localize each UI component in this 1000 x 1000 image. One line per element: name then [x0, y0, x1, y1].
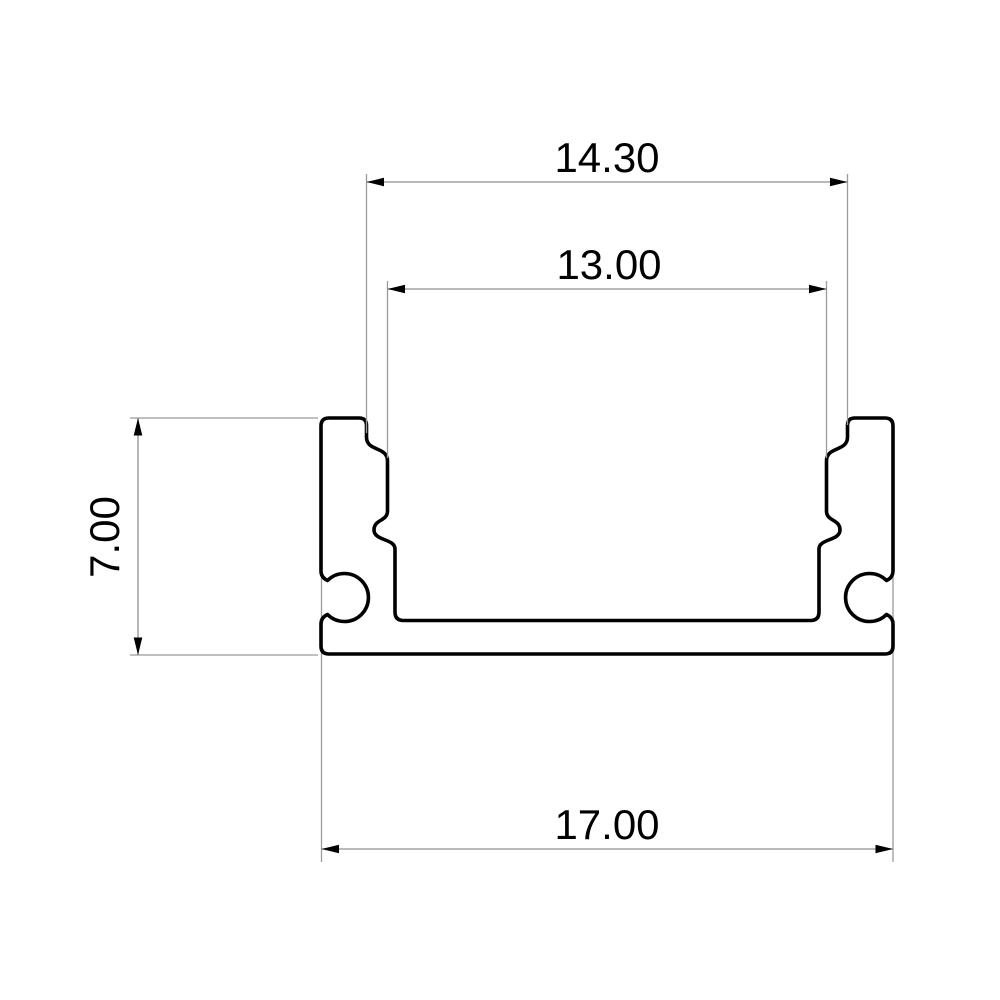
extension-lines — [130, 174, 848, 655]
arrowhead-left-icon — [367, 178, 385, 187]
dimension-label-bottom-width: 17.00 — [554, 801, 659, 848]
dimension-bottom-width: 17.00 — [322, 801, 894, 853]
technical-drawing: 14.30 13.00 7.00 17.00 — [0, 0, 1000, 1000]
arrowhead-down-icon — [134, 638, 143, 656]
dimension-inner-width: 13.00 — [388, 241, 827, 293]
arrowhead-right-icon — [876, 845, 894, 854]
dimension-label-height: 7.00 — [81, 496, 128, 578]
drawing-canvas: 14.30 13.00 7.00 17.00 — [0, 0, 1000, 1000]
arrowhead-left-icon — [388, 285, 406, 294]
arrowhead-left-icon — [322, 845, 340, 854]
profile-outline — [321, 418, 893, 654]
dimension-top-outer: 14.30 — [367, 134, 848, 186]
dimension-label-inner-width: 13.00 — [556, 241, 661, 288]
arrowhead-up-icon — [134, 418, 143, 436]
arrowhead-right-icon — [830, 178, 848, 187]
dimension-height: 7.00 — [81, 418, 142, 655]
dimension-label-top-outer: 14.30 — [554, 134, 659, 181]
arrowhead-right-icon — [809, 285, 827, 294]
